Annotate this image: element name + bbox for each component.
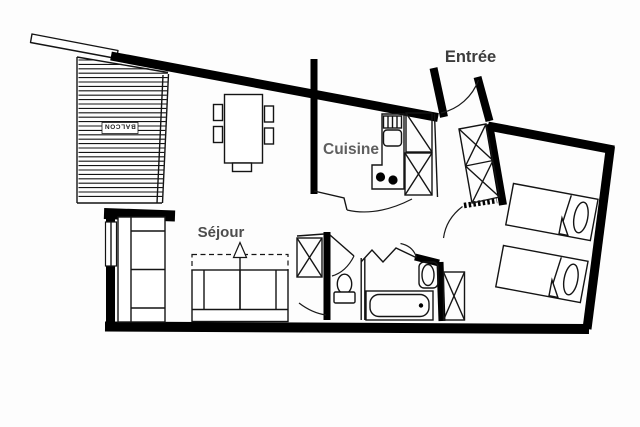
wall-bottom [105,327,589,330]
sofa [118,217,165,322]
floorplan-canvas: BALCON [0,0,640,427]
toilet-tank [334,292,355,303]
chair [265,128,274,144]
label-sejour: Séjour [198,224,245,241]
balcony-label: BALCON [104,123,135,130]
hob-burner [388,175,397,184]
chair [214,105,223,121]
floorplan-drawing: BALCON [0,0,640,427]
wall-bath-right [440,262,442,321]
chair [265,106,274,122]
chair [233,163,252,172]
window-sejour [106,222,117,266]
label-cuisine: Cuisine [323,141,379,158]
label-entree: Entrée [445,48,496,66]
hob-burner [376,172,385,181]
dining-table [225,95,263,164]
bathtub-drain [419,303,423,307]
wall-sejour-top [104,214,175,217]
toilet-bowl [337,274,351,294]
chair [214,127,223,143]
